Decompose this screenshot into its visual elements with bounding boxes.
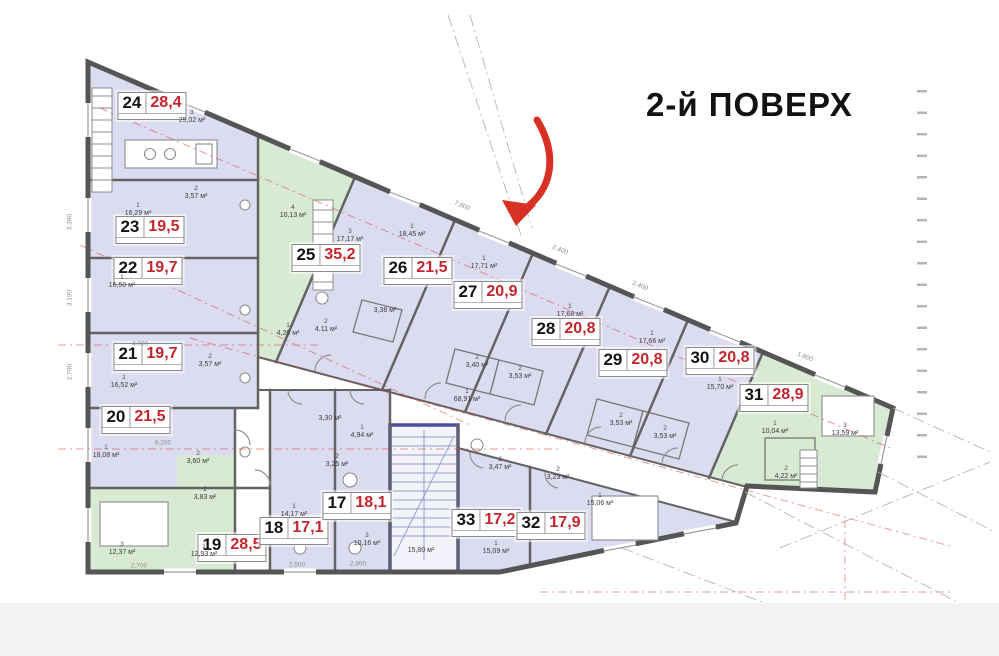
apartment-label-24: 2428,4 xyxy=(117,92,186,120)
room-area-label: 3,30 м² xyxy=(319,415,342,423)
room-area-label: 310,16 м² xyxy=(354,532,381,548)
dimension-text: 3.390 xyxy=(67,214,74,230)
room-area-label: 23,25 м² xyxy=(326,453,349,469)
apartment-area: 28,9 xyxy=(768,385,807,405)
room-number: 3 xyxy=(337,228,364,236)
room-area-label: 23,57 м² xyxy=(185,185,208,201)
room-area-value: 17,17 м² xyxy=(337,236,364,244)
room-number: 1 xyxy=(471,255,498,263)
dimension-text: 2.700 xyxy=(67,364,74,380)
room-number: 1 xyxy=(587,492,614,500)
room-area-label: 23,47 м² xyxy=(489,456,512,472)
apartment-number: 24 xyxy=(118,93,146,113)
apartment-area: 35,2 xyxy=(320,245,359,265)
room-number: 2 xyxy=(610,412,633,420)
apartment-label-subrow xyxy=(114,364,181,370)
apartment-label-17: 1718,1 xyxy=(322,492,391,520)
room-area-value: 10,13 м² xyxy=(280,212,307,220)
room-area-value: 10,04 м² xyxy=(762,428,789,436)
room-area-value: 14,17 м² xyxy=(281,511,308,519)
room-number: 2 xyxy=(509,365,532,373)
room-number: 2 xyxy=(489,456,512,464)
room-number: 1 xyxy=(109,274,136,282)
room-area-value: 17,68 м² xyxy=(557,311,584,319)
room-area-label: 317,17 м² xyxy=(337,228,364,244)
apartment-number: 29 xyxy=(599,350,627,370)
room-area-value: 17,71 м² xyxy=(471,263,498,271)
room-area-label: 116,29 м² xyxy=(125,202,152,218)
apartment-label-28: 2820,8 xyxy=(531,318,600,346)
room-number: 2 xyxy=(547,466,570,474)
apartment-label-subrow xyxy=(517,533,584,539)
room-area-label: 3,38 м² xyxy=(374,307,397,315)
room-area-value: 3,40 м² xyxy=(466,362,489,370)
room-number: 1 xyxy=(557,303,584,311)
apartment-area: 20,8 xyxy=(560,319,599,339)
apartment-area: 17,1 xyxy=(288,518,327,538)
apartment-area: 19,7 xyxy=(142,344,181,364)
room-area-label: 117,66 м² xyxy=(639,330,666,346)
room-area-label: 114,17 м² xyxy=(281,503,308,519)
room-area-value: 18,45 м² xyxy=(399,231,426,239)
apartment-label-27: 2720,9 xyxy=(453,281,522,309)
room-number: 1 xyxy=(125,202,152,210)
room-area-label: 117,68 м² xyxy=(557,303,584,319)
apartment-label-subrow xyxy=(384,278,451,284)
room-number: 1 xyxy=(351,424,374,432)
room-area-label: 23,60 м² xyxy=(187,450,210,466)
room-area-value: 12,93 м² xyxy=(191,551,218,559)
dimension-text: 2.500 xyxy=(289,562,305,569)
room-number: 1 xyxy=(454,388,481,396)
room-number: 1 xyxy=(483,540,510,548)
room-area-value: 3,38 м² xyxy=(374,307,397,315)
apartment-number: 28 xyxy=(532,319,560,339)
apartment-label-subrow xyxy=(292,265,359,271)
room-number: 3 xyxy=(109,541,136,549)
room-area-label: 23,53 м² xyxy=(610,412,633,428)
apartment-number: 31 xyxy=(740,385,768,405)
room-area-value: 16,52 м² xyxy=(111,382,138,390)
apartment-area: 20,8 xyxy=(714,348,753,368)
room-area-value: 3,57 м² xyxy=(199,361,222,369)
room-area-value: 4,20 м² xyxy=(277,330,300,338)
dimension-text: 2.700 xyxy=(131,563,147,570)
room-number: 3 xyxy=(832,422,859,430)
apartment-label-20: 2021,5 xyxy=(101,406,170,434)
room-area-value: 3,47 м² xyxy=(489,464,512,472)
room-area-label: 23,40 м² xyxy=(466,354,489,370)
apartment-label-23: 2319,5 xyxy=(115,216,184,244)
apartment-label-subrow xyxy=(686,368,753,374)
room-area-label: 14,94 м² xyxy=(351,424,374,440)
room-area-label: 313,59 м² xyxy=(832,422,859,438)
room-area-label: 116,50 м² xyxy=(109,274,136,290)
room-area-label: 15,80 м² xyxy=(408,547,435,555)
room-area-label: 23,53 м² xyxy=(654,425,677,441)
room-area-label: 112,93 м² xyxy=(191,543,218,559)
apartment-area: 17,2 xyxy=(480,510,519,530)
dimension-text: 2.400 xyxy=(551,244,569,257)
dimension-text: 2.800 xyxy=(350,561,366,568)
room-number: 1 xyxy=(399,223,426,231)
room-area-value: 15,70 м² xyxy=(707,384,734,392)
apartment-label-30: 3020,8 xyxy=(685,347,754,375)
dimension-text: 2.400 xyxy=(631,280,649,293)
dimension-text: 7.800 xyxy=(453,200,471,213)
room-area-value: 3,53 м² xyxy=(509,373,532,381)
apartment-label-25: 2535,2 xyxy=(291,244,360,272)
room-number: 1 xyxy=(111,374,138,382)
room-number: 3 xyxy=(354,532,381,540)
apartment-area: 20,8 xyxy=(627,350,666,370)
room-area-value: 3,60 м² xyxy=(187,458,210,466)
apartment-number: 27 xyxy=(454,282,482,302)
dimension-text: 6.200 xyxy=(155,440,171,447)
room-area-label: 117,71 м² xyxy=(471,255,498,271)
dimension-text: 4.000 xyxy=(132,341,148,348)
apartment-number: 18 xyxy=(260,518,288,538)
room-area-value: 3,53 м² xyxy=(654,433,677,441)
room-area-label: 14,20 м² xyxy=(277,322,300,338)
room-area-value: 18,08 м² xyxy=(93,452,120,460)
apartment-area: 21,5 xyxy=(130,407,169,427)
apartment-area: 19,5 xyxy=(144,217,183,237)
room-number: 3 xyxy=(179,109,206,117)
apartment-label-subrow xyxy=(599,370,666,376)
room-area-value: 15,06 м² xyxy=(587,500,614,508)
page-title: 2-й ПОВЕРХ xyxy=(646,86,853,124)
apartment-area: 20,9 xyxy=(482,282,521,302)
room-area-label: 116,52 м² xyxy=(111,374,138,390)
apartment-number: 20 xyxy=(102,407,130,427)
room-number: 2 xyxy=(466,354,489,362)
dimension-text: 1.800 xyxy=(796,351,814,364)
room-number: 2 xyxy=(187,450,210,458)
apartment-label-32: 3217,9 xyxy=(516,512,585,540)
apartment-label-subrow xyxy=(102,427,169,433)
apartment-label-subrow xyxy=(116,237,183,243)
room-area-value: 10,16 м² xyxy=(354,540,381,548)
room-number: 2 xyxy=(185,185,208,193)
floor-plan-page: 2-й ПОВЕРХ 2428,42319,52219,72119,72021,… xyxy=(0,0,999,656)
room-number: 1 xyxy=(762,420,789,428)
room-number: 1 xyxy=(707,376,734,384)
dimension-text: 3.190 xyxy=(67,290,74,306)
label-layer: 2-й ПОВЕРХ 2428,42319,52219,72119,72021,… xyxy=(0,0,999,656)
room-number: 2 xyxy=(199,353,222,361)
room-number: 1 xyxy=(277,322,300,330)
apartment-label-18: 1817,1 xyxy=(259,517,328,545)
room-area-label: 168,91 м² xyxy=(454,388,481,404)
room-area-value: 3,53 м² xyxy=(610,420,633,428)
room-number: 2 xyxy=(326,453,349,461)
apartment-label-26: 2621,5 xyxy=(383,257,452,285)
apartment-number: 32 xyxy=(517,513,545,533)
room-number: 1 xyxy=(281,503,308,511)
room-area-label: 24,22 м² xyxy=(775,465,798,481)
room-area-value: 3,23 м² xyxy=(547,474,570,482)
room-number: 2 xyxy=(775,465,798,473)
room-area-value: 15,80 м² xyxy=(408,547,435,555)
apartment-label-31: 3128,9 xyxy=(739,384,808,412)
room-area-label: 23,53 м² xyxy=(509,365,532,381)
room-number: 2 xyxy=(194,486,217,494)
apartment-label-subrow xyxy=(260,538,327,544)
apartment-area: 17,9 xyxy=(545,513,584,533)
room-area-label: 410,13 м² xyxy=(280,204,307,220)
room-area-value: 13,59 м² xyxy=(832,430,859,438)
room-area-label: 24,11 м² xyxy=(315,318,337,334)
room-area-value: 3,25 м² xyxy=(326,461,349,469)
apartment-label-33: 3317,2 xyxy=(451,509,520,537)
apartment-number: 25 xyxy=(292,245,320,265)
room-area-value: 4,22 м² xyxy=(775,473,798,481)
room-area-label: 325,02 м² xyxy=(179,109,206,125)
apartment-label-29: 2920,8 xyxy=(598,349,667,377)
apartment-number: 23 xyxy=(116,217,144,237)
room-area-value: 16,50 м² xyxy=(109,282,136,290)
room-area-label: 118,08 м² xyxy=(93,444,120,460)
room-area-value: 4,11 м² xyxy=(315,326,337,334)
apartment-number: 26 xyxy=(384,258,412,278)
apartment-label-subrow xyxy=(740,405,807,411)
room-number: 2 xyxy=(315,318,337,326)
apartment-label-subrow xyxy=(323,513,390,519)
apartment-number: 17 xyxy=(323,493,351,513)
room-area-value: 68,91 м² xyxy=(454,396,481,404)
apartment-number: 30 xyxy=(686,348,714,368)
apartment-area: 18,1 xyxy=(351,493,390,513)
apartment-area: 19,7 xyxy=(142,258,181,278)
room-area-label: 118,45 м² xyxy=(399,223,426,239)
room-area-value: 17,66 м² xyxy=(639,338,666,346)
apartment-area: 21,5 xyxy=(412,258,451,278)
room-number: 1 xyxy=(93,444,120,452)
room-area-label: 115,06 м² xyxy=(587,492,614,508)
room-area-value: 15,09 м² xyxy=(483,548,510,556)
room-area-value: 3,83 м² xyxy=(194,494,217,502)
apartment-label-subrow xyxy=(452,530,519,536)
room-area-value: 4,94 м² xyxy=(351,432,374,440)
room-area-label: 115,09 м² xyxy=(483,540,510,556)
apartment-label-subrow xyxy=(532,339,599,345)
room-area-label: 23,57 м² xyxy=(199,353,222,369)
apartment-label-subrow xyxy=(454,302,521,308)
apartment-label-subrow xyxy=(118,113,185,119)
room-number: 2 xyxy=(654,425,677,433)
room-area-value: 16,29 м² xyxy=(125,210,152,218)
room-area-label: 115,70 м² xyxy=(707,376,734,392)
room-area-value: 3,57 м² xyxy=(185,193,208,201)
room-number: 1 xyxy=(639,330,666,338)
room-number: 1 xyxy=(191,543,218,551)
room-area-label: 312,37 м² xyxy=(109,541,136,557)
room-area-value: 12,37 м² xyxy=(109,549,136,557)
room-area-value: 25,02 м² xyxy=(179,117,206,125)
room-area-label: 23,83 м² xyxy=(194,486,217,502)
room-area-label: 23,23 м² xyxy=(547,466,570,482)
apartment-number: 33 xyxy=(452,510,480,530)
room-area-value: 3,30 м² xyxy=(319,415,342,423)
room-area-label: 110,04 м² xyxy=(762,420,789,436)
room-number: 4 xyxy=(280,204,307,212)
